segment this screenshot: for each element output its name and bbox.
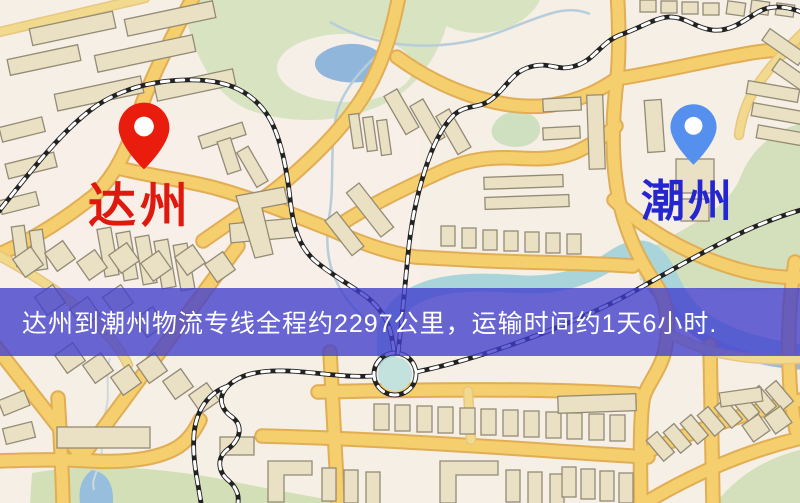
route-info-banner: 达州到潮州物流专线全程约2297公里，运输时间约1天6小时. [0,288,800,356]
route-info-text: 达州到潮州物流专线全程约2297公里，运输时间约1天6小时. [22,304,717,340]
destination-pin[interactable] [669,100,718,169]
map-canvas[interactable] [0,0,800,503]
map-viewport: 达州 潮州 达州到潮州物流专线全程约2297公里，运输时间约1天6小时. [0,0,800,503]
destination-pin-icon [669,100,718,169]
origin-pin-icon [117,99,171,173]
origin-pin[interactable] [117,99,171,173]
